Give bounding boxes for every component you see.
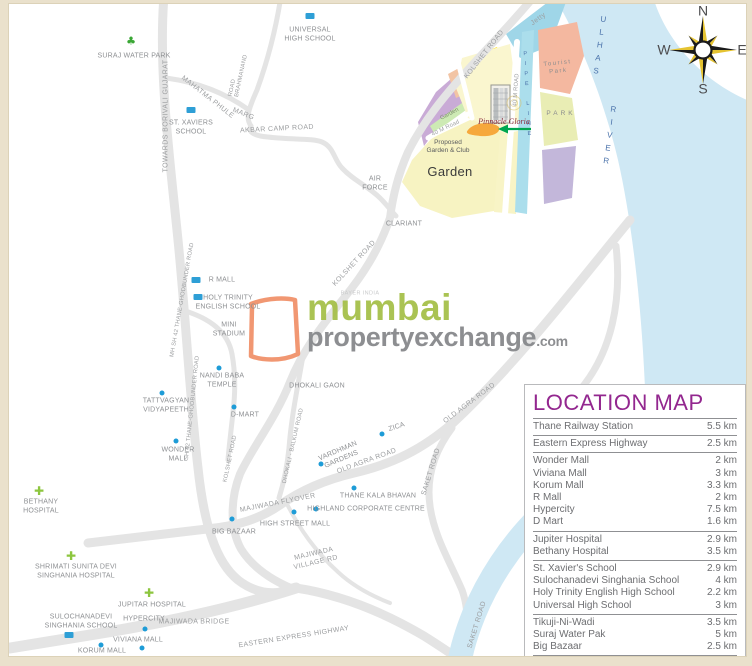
compass-w-label: W — [657, 41, 670, 59]
legend-row-distance: 7.5 km — [707, 504, 737, 516]
label-big-bazaar: BIG BAZAAR — [212, 529, 256, 538]
label-clariant: CLARIANT — [386, 221, 422, 230]
legend-row-distance: 5 km — [715, 629, 737, 641]
sulochanadevi-school-icon — [65, 632, 74, 638]
label-highland-corporate: HIGHLAND CORPORATE CENTRE — [307, 506, 425, 515]
tourist-park-zone — [538, 22, 584, 94]
label-garden: Garden — [427, 164, 472, 180]
label-bethany-hospital: BETHANY HOSPITAL — [23, 498, 59, 516]
legend-row: St. Xavier's School2.9 km — [533, 563, 737, 575]
legend-row-name: Viviana Mall — [533, 468, 587, 480]
label-pinnacle-gloria: Pinnacle Gloria — [478, 117, 530, 127]
legend-row: Suraj Water Pak5 km — [533, 629, 737, 641]
label-nandi-baba: NANDI BABA TEMPLE — [200, 372, 244, 390]
road-label-majiwada-bridge: MAJIWADA BRIDGE — [158, 619, 229, 628]
shrimati-hospital-cross-icon: ✚ — [66, 550, 76, 562]
legend-divider — [533, 655, 737, 656]
legend-row: Korum Mall3.3 km — [533, 480, 737, 492]
legend-row: Holy Trinity English High School2.2 km — [533, 587, 737, 599]
legend-row-distance: 5.5 km — [707, 421, 737, 433]
wonder-mall-marker-icon — [174, 439, 179, 444]
label-dhokali-gaon: DHOKALI GAON — [289, 383, 345, 392]
legend-divider — [533, 614, 737, 615]
tattvagyan-marker-icon — [160, 391, 165, 396]
legend-divider — [533, 418, 737, 419]
hypercity-marker-icon — [143, 627, 148, 632]
watermark-text: mumbai propertyexchange.com — [307, 292, 568, 352]
suraj-water-park-tree-icon: ♣ — [126, 36, 136, 47]
label-wonder-mall: WONDER MALL — [161, 446, 194, 464]
label-korum-mall: KORUM MALL — [78, 648, 126, 657]
label-d-mart: D-MART — [231, 412, 259, 421]
location-map-legend: LOCATION MAP Thane Railway Station5.5 km… — [524, 384, 746, 660]
legend-row-distance: 3.5 km — [707, 546, 737, 558]
thane-kala-bhavan-marker-icon — [352, 486, 357, 491]
universal-high-school-icon — [306, 13, 315, 19]
legend-row-name: D Mart — [533, 516, 563, 528]
label-high-street-mall: HIGH STREET MALL — [260, 521, 330, 530]
legend-row-name: St. Xavier's School — [533, 563, 617, 575]
compass-e-label: E — [737, 41, 746, 59]
watermark-domain-main: propertyexchange — [307, 322, 536, 352]
d-mart-marker-icon — [232, 405, 237, 410]
legend-row: Hypercity7.5 km — [533, 504, 737, 516]
legend-row-name: Sulochanadevi Singhania School — [533, 575, 679, 587]
zone-purple-se — [542, 146, 576, 204]
legend-row: Bethany Hospital3.5 km — [533, 546, 737, 558]
label-thane-kala-bhavan: THANE KALA BHAVAN — [340, 493, 416, 502]
road-akbar-camp — [250, 126, 396, 216]
high-street-mall-marker-icon — [292, 510, 297, 515]
label-bayer-india: BAYER INDIA — [341, 291, 380, 298]
legend-row-distance: 2.5 km — [707, 438, 737, 450]
legend-row-distance: 3 km — [715, 468, 737, 480]
legend-row-distance: 3.5 km — [707, 617, 737, 629]
legend-row-name: Jupiter Hospital — [533, 534, 602, 546]
legend-row-distance: 2.2 km — [707, 587, 737, 599]
legend-row-name: Wonder Mall — [533, 455, 589, 467]
legend-row-name: Tikuji-Ni-Wadi — [533, 617, 594, 629]
legend-row-name: Suraj Water Pak — [533, 629, 605, 641]
legend-divider — [533, 435, 737, 436]
legend-row-distance: 2.9 km — [707, 563, 737, 575]
legend-row-name: Universal High School — [533, 600, 631, 612]
legend-row-name: Big Bazaar — [533, 641, 582, 653]
label-viviana-mall: VIVIANA MALL — [113, 637, 163, 646]
legend-row-distance: 3 km — [715, 600, 737, 612]
legend-row-distance: 4 km — [715, 575, 737, 587]
label-tourist-park: Tourist Park — [543, 59, 573, 77]
legend-row: R Mall2 km — [533, 492, 737, 504]
legend-row-distance: 2.5 km — [707, 641, 737, 653]
watermark-domain-suffix: .com — [536, 333, 567, 349]
legend-row: D Mart1.6 km — [533, 516, 737, 528]
road-label-towards-borivali: TOWARDS BORIVALI GUJARAT — [163, 60, 172, 173]
legend-row-distance: 1.6 km — [707, 516, 737, 528]
label-mini-stadium: MINI STADIUM — [213, 321, 245, 339]
label-shrimati-hospital: SHRIMATI SUNITA DEVI SINGHANIA HOSPITAL — [35, 563, 117, 581]
label-tattvagyan: TATTVAGYAN VIDYAPEETH — [143, 397, 190, 415]
legend-row-name: Hypercity — [533, 504, 575, 516]
watermark: mumbai propertyexchange.com — [243, 292, 568, 366]
legend-row-name: R Mall — [533, 492, 561, 504]
watermark-domain: propertyexchange.com — [307, 323, 568, 351]
legend-row: Tikuji-Ni-Wadi3.5 km — [533, 617, 737, 629]
legend-row-name: Thane Railway Station — [533, 421, 633, 433]
bethany-hospital-cross-icon: ✚ — [34, 485, 44, 497]
legend-row-name: Eastern Express Highway — [533, 438, 648, 450]
legend-row-name: Korum Mall — [533, 480, 584, 492]
legend-row: Sulochanadevi Singhania School4 km — [533, 575, 737, 587]
legend-row: Universal High School3 km — [533, 600, 737, 612]
park-zone — [540, 92, 578, 146]
legend-row-distance: 3.3 km — [707, 480, 737, 492]
legend-row-distance: 2.9 km — [707, 534, 737, 546]
label-st-xaviers: ST. XAVIERS SCHOOL — [169, 119, 213, 137]
label-park: PARK — [546, 110, 575, 118]
label-r-mall: R MALL — [209, 277, 236, 286]
label-air-force: AIR FORCE — [362, 175, 388, 193]
legend-row: Eastern Express Highway2.5 km — [533, 438, 737, 450]
legend-row-distance: 2 km — [715, 455, 737, 467]
compass-n-label: N — [698, 2, 708, 20]
compass-s-label: S — [698, 80, 707, 98]
label-proposed-garden-club: Proposed Garden & Club — [427, 139, 470, 155]
location-map-page: mumbai propertyexchange.com ♣ ✚ ✚ ✚ SURA… — [0, 0, 752, 666]
legend-row-distance: 2 km — [715, 492, 737, 504]
legend-row: Viviana Mall3 km — [533, 468, 737, 480]
label-jupitar-hospital: JUPITAR HOSPITAL — [118, 602, 186, 611]
label-suraj-water-park: SURAJ WATER PARK — [97, 53, 170, 62]
legend-divider — [533, 452, 737, 453]
label-sulochanadevi-school: SULOCHANADEVI SINGHANIA SCHOOL — [45, 613, 118, 631]
viviana-mall-marker-icon — [140, 646, 145, 651]
big-bazaar-marker-icon — [230, 517, 235, 522]
legend-row: Big Bazaar2.5 km — [533, 641, 737, 653]
zica-marker-icon — [380, 432, 385, 437]
label-holy-trinity: HOLY TRINITY ENGLISH SCHOOL — [195, 294, 260, 312]
st-xaviers-school-icon — [187, 107, 196, 113]
legend-row: Wonder Mall2 km — [533, 455, 737, 467]
legend-divider — [533, 560, 737, 561]
jupitar-hospital-cross-icon: ✚ — [144, 587, 154, 599]
legend-row: Jupiter Hospital2.9 km — [533, 534, 737, 546]
legend-row-name: Bethany Hospital — [533, 546, 609, 558]
legend-footer: (All distances are approximate) — [533, 658, 737, 666]
road-universal-link — [248, 0, 281, 126]
legend-divider — [533, 531, 737, 532]
label-universal-high-school: UNIVERSAL HIGH SCHOOL — [284, 26, 335, 44]
legend-row-name: Holy Trinity English High School — [533, 587, 675, 599]
legend-row: Thane Railway Station5.5 km — [533, 421, 737, 433]
legend-title: LOCATION MAP — [533, 390, 737, 416]
nandi-baba-temple-marker-icon — [217, 366, 222, 371]
r-mall-icon — [192, 277, 201, 283]
